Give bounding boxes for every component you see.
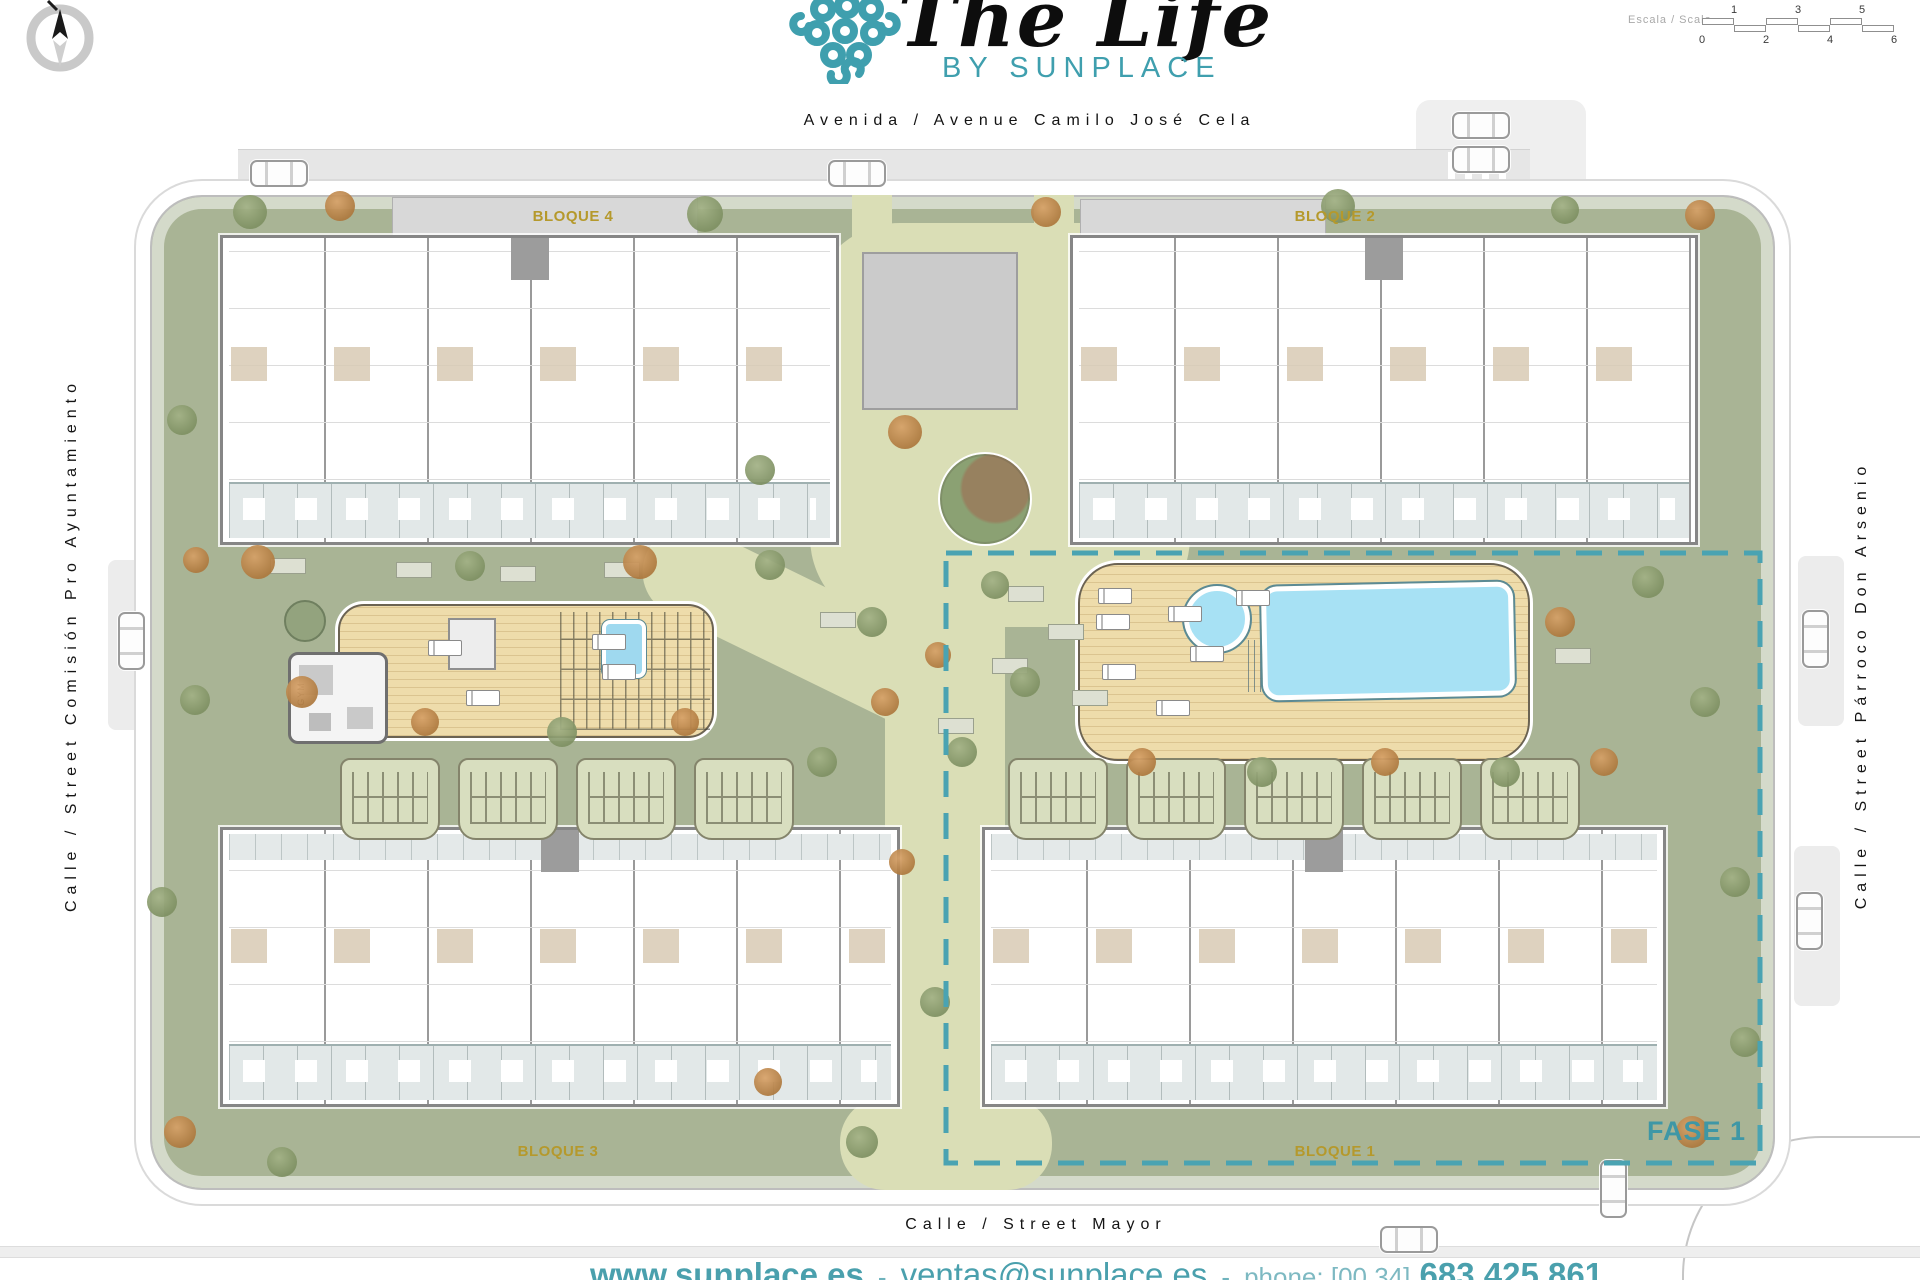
tree: [846, 1126, 878, 1158]
street-label-top: Avenida / Avenue Camilo José Cela: [772, 112, 1287, 130]
scale-bar-label: Escala / Scale: [1628, 14, 1712, 26]
footer-contact: www.sunplace.es-ventas@sunplace.es-phone…: [590, 1256, 1603, 1280]
tree: [1685, 200, 1715, 230]
scale-tick-bottom: 0: [1699, 34, 1705, 46]
scale-segment: [1702, 18, 1734, 25]
sun-lounger: [466, 690, 500, 706]
label-bloque-4: BLOQUE 4: [493, 208, 653, 225]
scale-segment: [1766, 18, 1798, 25]
building-bloque-2: [1070, 235, 1698, 545]
building-bloque-4: [220, 235, 839, 545]
street-label-bottom: Calle / Street Mayor: [882, 1216, 1190, 1234]
parking-pergola: [458, 758, 558, 840]
brand-subtitle: BY SUNPLACE: [942, 52, 1222, 85]
tree: [671, 708, 699, 736]
phone-label: phone: [00 34]: [1244, 1262, 1410, 1280]
website-link[interactable]: www.sunplace.es: [590, 1256, 864, 1280]
sun-lounger: [592, 634, 626, 650]
tree: [455, 551, 485, 581]
bathroom-zones: [231, 347, 828, 381]
garden-bench: [396, 562, 432, 578]
garden-bench: [820, 612, 856, 628]
scale-segment: [1862, 25, 1894, 32]
scale-tick-top: 1: [1731, 4, 1737, 16]
phone-number: 683 425 861: [1420, 1256, 1604, 1280]
tree: [1031, 197, 1061, 227]
scale-tick-top: 3: [1795, 4, 1801, 16]
sun-lounger: [428, 640, 462, 656]
separator: -: [864, 1262, 901, 1280]
tree: [745, 455, 775, 485]
garden-bench: [270, 558, 306, 574]
parking-pergola: [694, 758, 794, 840]
central-plaza: [862, 252, 1018, 410]
tree: [325, 191, 355, 221]
tree: [807, 747, 837, 777]
parking-pergola: [576, 758, 676, 840]
email-link[interactable]: ventas@sunplace.es: [901, 1256, 1208, 1280]
tree: [286, 676, 318, 708]
fase-1-boundary: [942, 549, 1764, 1167]
car: [1796, 892, 1823, 950]
scale-segment: [1830, 18, 1862, 25]
tree: [167, 405, 197, 435]
sun-lounger: [602, 664, 636, 680]
tree: [233, 195, 267, 229]
label-bloque-1: BLOQUE 1: [1255, 1143, 1415, 1160]
car: [118, 612, 145, 670]
label-bloque-2: BLOQUE 2: [1255, 208, 1415, 225]
terrace-strip: [1079, 482, 1689, 538]
scale-segment: [1798, 25, 1830, 32]
tree: [147, 887, 177, 917]
scale-tick-top: 5: [1859, 4, 1865, 16]
car: [1802, 610, 1829, 668]
car: [1452, 146, 1510, 173]
car: [1452, 112, 1510, 139]
bathroom-zones: [231, 929, 889, 963]
tree: [754, 1068, 782, 1096]
sunplace-logo-icon: [787, 0, 903, 84]
tree: [888, 415, 922, 449]
tree: [857, 607, 887, 637]
scale-segment: [1734, 25, 1766, 32]
tree: [755, 550, 785, 580]
car: [828, 160, 886, 187]
scale-tick-bottom: 2: [1763, 34, 1769, 46]
site-plan-page: The Life BY SUNPLACE Escala / Scale 1350…: [0, 0, 1920, 1280]
stair-core: [1365, 238, 1403, 280]
tree: [889, 849, 915, 875]
garden-bench: [500, 566, 536, 582]
tree: [547, 717, 577, 747]
separator: -: [1207, 1262, 1244, 1280]
compass-icon: [18, 0, 102, 82]
planter-circle: [284, 600, 326, 642]
tree: [241, 545, 275, 579]
building-bloque-3: [220, 827, 900, 1107]
terrace-strip: [229, 1044, 891, 1100]
tree: [1551, 196, 1579, 224]
tree: [687, 196, 723, 232]
tree: [183, 547, 209, 573]
tree: [180, 685, 210, 715]
car: [1380, 1226, 1438, 1253]
tree: [164, 1116, 196, 1148]
playground-circle: [938, 452, 1032, 546]
scale-tick-bottom: 6: [1891, 34, 1897, 46]
terrace-strip: [229, 482, 830, 538]
fase-1-label: FASE 1: [1578, 1116, 1746, 1147]
car: [250, 160, 308, 187]
parking-pergola: [340, 758, 440, 840]
bathroom-zones: [1081, 347, 1687, 381]
scale-bar: 1350246: [1702, 18, 1894, 32]
tree: [623, 545, 657, 579]
tree: [267, 1147, 297, 1177]
label-bloque-3: BLOQUE 3: [478, 1143, 638, 1160]
car: [1600, 1160, 1627, 1218]
tree: [871, 688, 899, 716]
tree: [411, 708, 439, 736]
stair-core: [511, 238, 549, 280]
scale-tick-bottom: 4: [1827, 34, 1833, 46]
street-label-left: Calle / Street Comisión Pro Ayuntamiento: [63, 325, 81, 965]
street-label-right: Calle / Street Párroco Don Arsenio: [1853, 365, 1871, 1005]
